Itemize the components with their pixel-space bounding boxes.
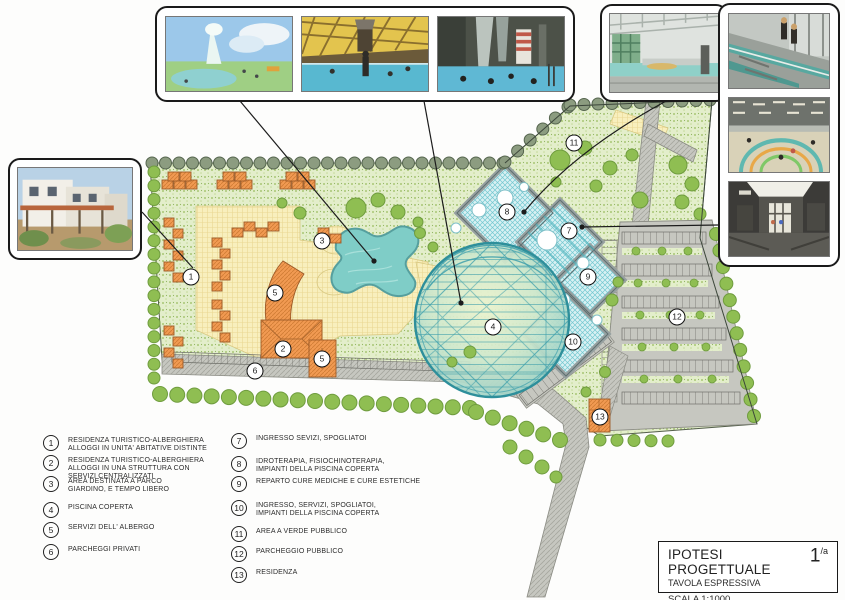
plan-marker: 2 (275, 341, 292, 358)
legend-item-text: REPARTO CURE MEDICHE E CURE ESTETICHE (256, 476, 420, 486)
plan-marker: 5 (267, 285, 284, 302)
photo-teaching-pool-circle (728, 97, 830, 173)
legend-item-number: 2 (43, 455, 59, 471)
legend-item-text: INGRESSO, SERVIZI, SPOGLIATOI, IMPIANTI … (256, 500, 379, 518)
legend-item-number: 7 (231, 433, 247, 449)
legend-item-text: IDROTERAPIA, FISIOCHINOTERAPIA, IMPIANTI… (256, 456, 385, 474)
legend-item-number: 12 (231, 546, 247, 562)
legend-item-text: RESIDENZA TURISTICO-ALBERGHIERA ALLOGGI … (68, 435, 207, 453)
photo-panel-right (718, 3, 840, 267)
plan-marker: 1 (183, 269, 200, 286)
legend-item-text: AREA DESTINATA A PARCO GIARDINO, E TEMPO… (68, 476, 169, 494)
plan-marker: 9 (580, 269, 597, 286)
sheet-scale: SCALA 1:1000 (668, 594, 828, 600)
plan-marker: 13 (592, 409, 609, 426)
photo-residence-building (17, 167, 133, 251)
photo-panel-top (155, 6, 575, 102)
plan-marker: 8 (499, 204, 516, 221)
legend-item-text: PARCHEGGI PRIVATI (68, 544, 140, 554)
legend-item-number: 4 (43, 502, 59, 518)
legend-item: 12 PARCHEGGIO PUBBLICO (231, 546, 343, 562)
photo-indoor-pool-waterfall (437, 16, 565, 92)
legend-item-number: 11 (231, 526, 247, 542)
legend-item-number: 6 (43, 544, 59, 560)
legend-item-number: 1 (43, 435, 59, 451)
plan-marker: 3 (314, 233, 331, 250)
sheet-title: IPOTESI PROGETTUALE (668, 547, 810, 577)
legend-item-text: RESIDENZA (256, 567, 297, 577)
photo-outdoor-pool-fountain (165, 16, 293, 92)
legend-item: 10 INGRESSO, SERVIZI, SPOGLIATOI, IMPIAN… (231, 500, 379, 518)
masterplan-sheet: 123455678910111213 1 RESIDENZA TURISTICO… (0, 0, 845, 600)
plan-marker: 6 (247, 363, 264, 380)
title-block: IPOTESI PROGETTUALE 1/a TAVOLA ESPRESSIV… (658, 541, 838, 593)
legend-item: 9 REPARTO CURE MEDICHE E CURE ESTETICHE (231, 476, 420, 492)
plan-marker: 5 (314, 351, 331, 368)
legend-item-text: SERVIZI DELL' ALBERGO (68, 522, 154, 532)
photo-panel-top-right (600, 4, 728, 102)
legend-item: 5 SERVIZI DELL' ALBERGO (43, 522, 154, 538)
legend-item: 8 IDROTERAPIA, FISIOCHINOTERAPIA, IMPIAN… (231, 456, 385, 474)
legend-item: 13 RESIDENZA (231, 567, 297, 583)
legend-item-number: 10 (231, 500, 247, 516)
plan-marker: 7 (561, 223, 578, 240)
photo-entrance-lobby (728, 181, 830, 257)
legend-item: 6 PARCHEGGI PRIVATI (43, 544, 140, 560)
legend-item: 4 PISCINA COPERTA (43, 502, 133, 518)
plan-marker: 4 (485, 319, 502, 336)
photo-pool-deck-divers (728, 13, 830, 89)
legend-item: 3 AREA DESTINATA A PARCO GIARDINO, E TEM… (43, 476, 169, 494)
sheet-number: 1/a (810, 547, 828, 564)
legend-item-number: 8 (231, 456, 247, 472)
legend-item-text: PARCHEGGIO PUBBLICO (256, 546, 343, 556)
plan-marker: 12 (669, 309, 686, 326)
legend-item: 7 INGRESSO SEVIZI, SPOGLIATOI (231, 433, 367, 449)
legend-item-text: PISCINA COPERTA (68, 502, 133, 512)
legend-item-number: 9 (231, 476, 247, 492)
legend-item: 1 RESIDENZA TURISTICO-ALBERGHIERA ALLOGG… (43, 435, 207, 453)
legend-item-number: 3 (43, 476, 59, 492)
legend-item-text: AREA A VERDE PUBBLICO (256, 526, 347, 536)
legend-item: 11 AREA A VERDE PUBBLICO (231, 526, 347, 542)
photo-panel-left (8, 158, 142, 260)
plan-marker: 11 (566, 135, 583, 152)
legend-item-number: 5 (43, 522, 59, 538)
photo-indoor-pool-yellow-roof (301, 16, 429, 92)
legend-item-number: 13 (231, 567, 247, 583)
legend-item-text: INGRESSO SEVIZI, SPOGLIATOI (256, 433, 367, 443)
sheet-subtitle: TAVOLA ESPRESSIVA (668, 578, 828, 588)
photo-indoor-pool-hall (609, 13, 719, 93)
plan-marker: 10 (565, 334, 582, 351)
